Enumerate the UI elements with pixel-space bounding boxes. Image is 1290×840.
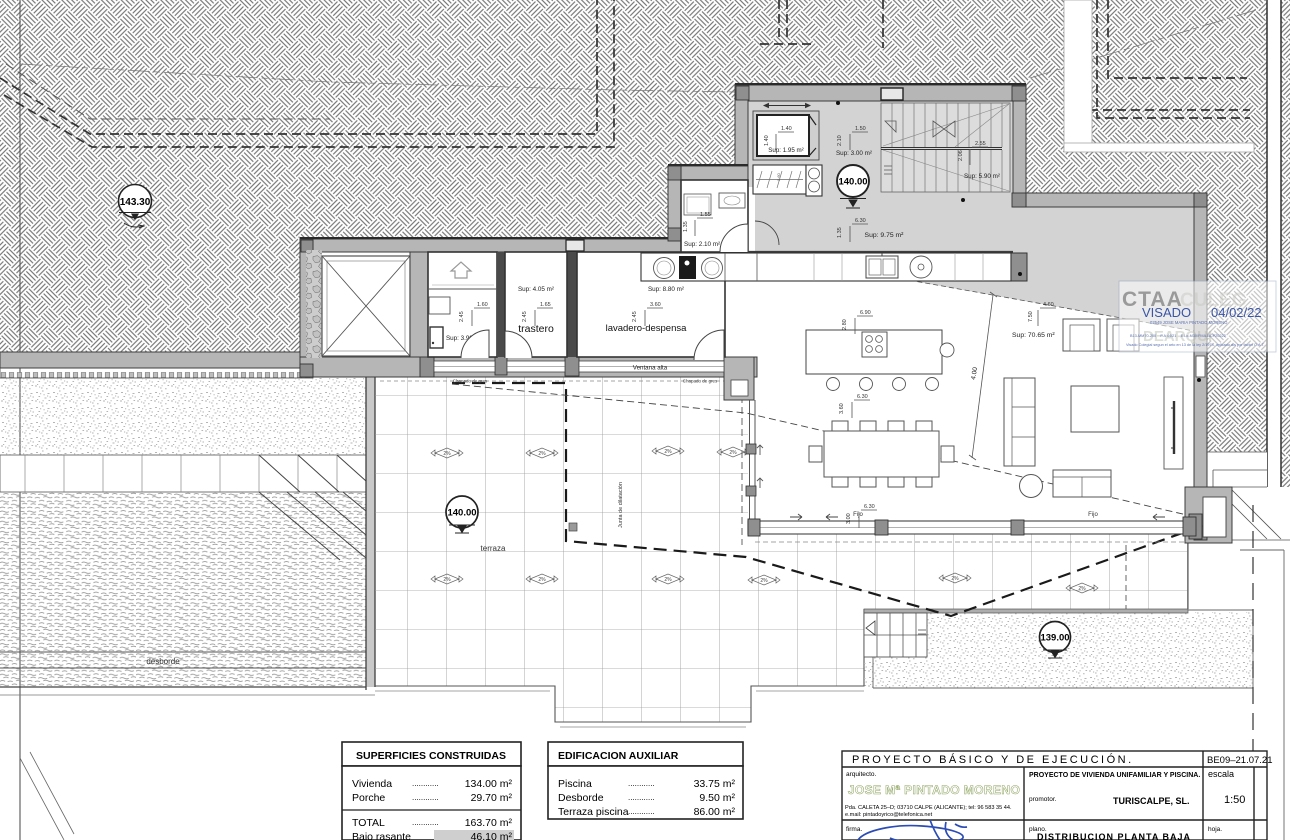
svg-text:Porche: Porche	[352, 792, 385, 804]
svg-text:VISADO: VISADO	[1142, 305, 1191, 320]
svg-text:1:50: 1:50	[1224, 794, 1245, 806]
svg-text:Sup: 9.75 m²: Sup: 9.75 m²	[865, 232, 905, 239]
svg-text:6.90: 6.90	[860, 310, 871, 316]
svg-text:DISTRIBUCION PLANTA BAJA: DISTRIBUCION PLANTA BAJA	[1037, 832, 1191, 840]
svg-text:2%: 2%	[443, 577, 451, 583]
svg-text:............: ............	[412, 779, 439, 788]
svg-text:1.35: 1.35	[683, 221, 689, 232]
svg-text:0.60: 0.60	[776, 172, 781, 181]
svg-text:3.60: 3.60	[650, 302, 661, 308]
svg-text:JOSE Mª PINTADO MORENO: JOSE Mª PINTADO MORENO	[848, 783, 1020, 797]
svg-text:Sup: 4.05 m²: Sup: 4.05 m²	[518, 286, 554, 293]
svg-text:EDIFICACION AUXILIAR: EDIFICACION AUXILIAR	[558, 750, 679, 762]
svg-text:promotor.: promotor.	[1029, 796, 1057, 803]
svg-text:TOTAL: TOTAL	[352, 817, 385, 829]
svg-text:6.30: 6.30	[855, 218, 866, 224]
svg-text:6.30: 6.30	[857, 394, 868, 400]
svg-text:trastero: trastero	[518, 323, 554, 335]
svg-text:Ventana alta: Ventana alta	[633, 365, 668, 372]
svg-text:............: ............	[412, 793, 439, 802]
svg-text:7.50: 7.50	[1028, 311, 1034, 322]
svg-text:hoja.: hoja.	[1208, 826, 1222, 833]
svg-text:Sup: 1.95 m²: Sup: 1.95 m²	[768, 147, 803, 154]
svg-text:2%: 2%	[443, 451, 451, 457]
svg-text:Sup: 8.80 m²: Sup: 8.80 m²	[648, 286, 684, 293]
svg-text:PROYECTO DE VIVIENDA UNIFAM: PROYECTO DE VIVIENDA UNIFAMILIAR Y PISCI…	[1029, 772, 1200, 779]
svg-text:escala: escala	[1208, 769, 1234, 779]
svg-text:1.40: 1.40	[781, 126, 792, 132]
svg-text:e.mail: pintadoyrico@telefoni: e.mail: pintadoyrico@telefonica.net	[845, 812, 933, 818]
svg-text:2.55: 2.55	[975, 141, 986, 147]
svg-text:2%: 2%	[538, 451, 546, 457]
svg-text:46.10 m²: 46.10 m²	[471, 831, 513, 840]
svg-text:86.00 m²: 86.00 m²	[694, 806, 736, 818]
svg-text:Sup: 3.00 m²: Sup: 3.00 m²	[836, 150, 872, 157]
svg-text:Sup: 5.90 m²: Sup: 5.90 m²	[964, 173, 1000, 180]
svg-text:PROYECTO BÁSICO Y DE EJECU: PROYECTO BÁSICO Y DE EJECUCIÓN.	[852, 753, 1134, 766]
svg-text:2.80: 2.80	[842, 319, 848, 330]
svg-text:2%: 2%	[538, 577, 546, 583]
svg-text:2.45: 2.45	[522, 311, 528, 322]
svg-text:9.50 m²: 9.50 m²	[699, 792, 735, 804]
svg-text:Junta de dilatación: Junta de dilatación	[618, 482, 624, 528]
svg-text:143.30: 143.30	[120, 197, 151, 208]
svg-text:04/02/22: 04/02/22	[1211, 305, 1262, 320]
svg-text:4.60: 4.60	[1043, 302, 1054, 308]
svg-text:Piscina: Piscina	[558, 778, 592, 790]
svg-text:............: ............	[628, 779, 655, 788]
svg-text:Pda. CALETA 25–D; 03710 CAL: Pda. CALETA 25–D; 03710 CALPE (ALICANTE)…	[845, 805, 1012, 811]
svg-text:139.00: 139.00	[1040, 633, 1069, 644]
svg-text:TURISCALPE, SL.: TURISCALPE, SL.	[1113, 796, 1190, 806]
svg-text:lavadero-despensa: lavadero-despensa	[606, 323, 688, 334]
svg-text:2%: 2%	[664, 449, 672, 455]
svg-text:1.55: 1.55	[700, 212, 711, 218]
svg-text:SUPERFICIES CONSTRUIDAS: SUPERFICIES CONSTRUIDAS	[356, 750, 506, 762]
svg-text:1.50: 1.50	[855, 126, 866, 132]
svg-text:2.10: 2.10	[837, 135, 843, 146]
svg-text:2%: 2%	[1078, 586, 1086, 592]
svg-text:Visado Colegial segun el arto: Visado Colegial segun el arto en 13 de l…	[1126, 343, 1265, 347]
svg-text:134.00 m²: 134.00 m²	[465, 778, 513, 790]
svg-text:29.70 m²: 29.70 m²	[471, 792, 513, 804]
svg-text:6.30: 6.30	[864, 504, 875, 510]
svg-text:Chapado de gres: Chapado de gres	[453, 379, 488, 384]
svg-text:2.45: 2.45	[459, 311, 465, 322]
svg-text:2.06: 2.06	[958, 150, 964, 161]
svg-text:1.60: 1.60	[477, 302, 488, 308]
svg-text:140.00: 140.00	[447, 508, 476, 519]
svg-text:3.00: 3.00	[846, 513, 852, 524]
svg-text:............: ............	[412, 818, 439, 827]
svg-text:Terraza piscina: Terraza piscina	[558, 806, 629, 818]
svg-text:Bajo rasante: Bajo rasante	[352, 831, 411, 840]
svg-text:Vivienda: Vivienda	[352, 778, 392, 790]
svg-text:firma.: firma.	[846, 826, 862, 833]
svg-text:B13-MM70-200 P.A 44/21 E: B13-MM70-200 P.A 44/21 E.Lo-M30/FMA-BCP2…	[1130, 334, 1226, 338]
svg-text:2%: 2%	[664, 577, 672, 583]
svg-text:terraza: terraza	[481, 544, 506, 553]
svg-text:1.35: 1.35	[837, 227, 843, 238]
svg-text:Sup: 70.65 m²: Sup: 70.65 m²	[1012, 332, 1055, 339]
svg-text:BE09–21.07.21: BE09–21.07.21	[1207, 755, 1273, 766]
svg-text:1.65: 1.65	[540, 302, 551, 308]
svg-text:163.70 m²: 163.70 m²	[465, 817, 513, 829]
svg-text:02549 JOSE MARIA PINTADO MOREN: 02549 JOSE MARIA PINTADO MORENO	[1150, 320, 1228, 325]
svg-text:............: ............	[628, 807, 655, 816]
svg-text:............: ............	[628, 793, 655, 802]
svg-text:arquitecto.: arquitecto.	[846, 771, 877, 778]
svg-text:Fijo: Fijo	[853, 512, 863, 518]
svg-text:3.60: 3.60	[839, 403, 845, 414]
svg-text:2.45: 2.45	[632, 311, 638, 322]
svg-text:desborde: desborde	[146, 657, 180, 666]
svg-text:2%: 2%	[729, 450, 737, 456]
svg-text:Chapado de gres: Chapado de gres	[683, 379, 718, 384]
svg-text:1.40: 1.40	[764, 135, 770, 146]
svg-text:33.75 m²: 33.75 m²	[694, 778, 736, 790]
svg-text:140.00: 140.00	[838, 177, 867, 188]
svg-text:Fijo: Fijo	[1088, 512, 1098, 518]
svg-text:2%: 2%	[951, 576, 959, 582]
svg-text:Sup: 2.10 m²: Sup: 2.10 m²	[684, 241, 720, 248]
svg-text:2%: 2%	[760, 578, 768, 584]
svg-text:Desborde: Desborde	[558, 792, 604, 804]
